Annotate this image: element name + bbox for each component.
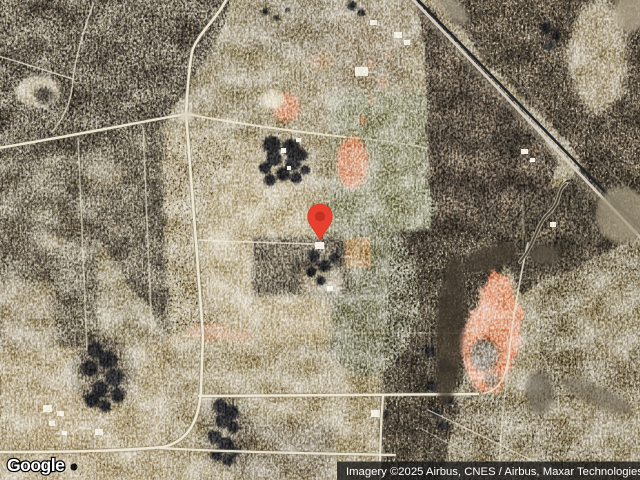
svg-text:Google: Google bbox=[7, 455, 65, 475]
svg-text:Imagery ©2025 Airbus, CNES / A: Imagery ©2025 Airbus, CNES / Airbus, Max… bbox=[346, 466, 640, 478]
